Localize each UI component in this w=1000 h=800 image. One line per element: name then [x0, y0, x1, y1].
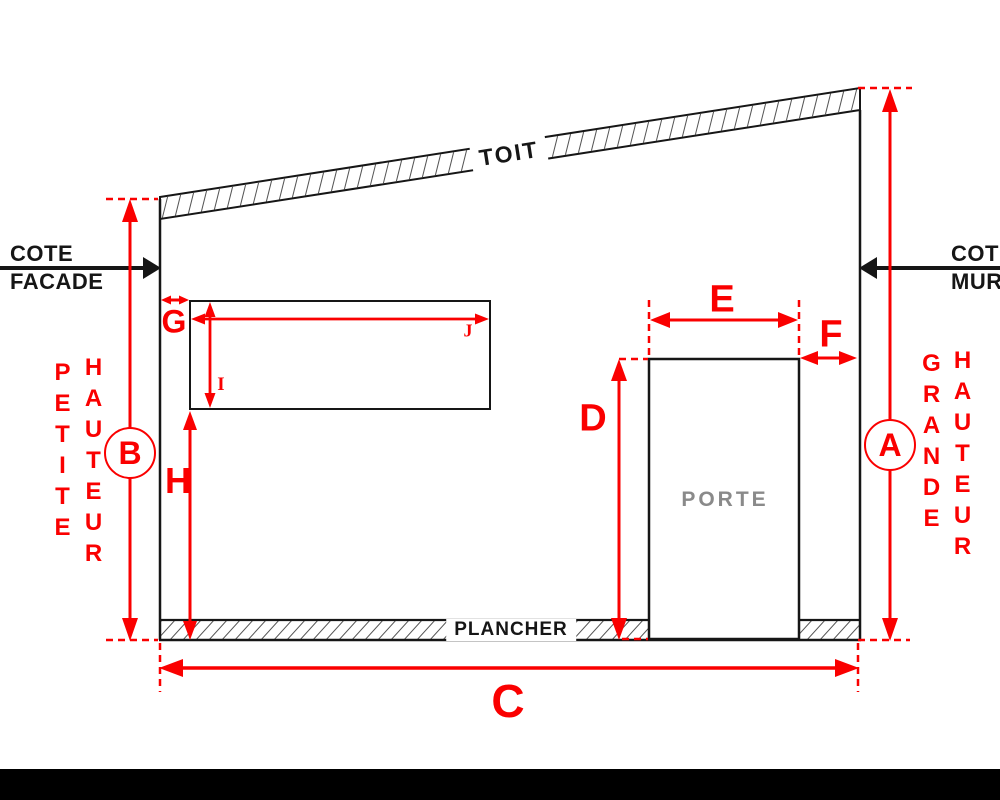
dim-letter-I: I — [217, 374, 224, 396]
dim-line-H — [183, 411, 197, 640]
facade-dimension-diagram: COTE FACADE COTE MUR TOIT PLANCHER PORTE… — [0, 0, 1000, 800]
dim-letter-G: G — [162, 304, 187, 341]
bottom-black-bar — [0, 769, 1000, 800]
mur-reference-label: COTE MUR — [951, 240, 1000, 296]
dim-letter-J: J — [464, 321, 473, 342]
facade-reference-line2: FACADE — [10, 268, 103, 296]
grande-hauteur-word1: GRANDE — [918, 350, 944, 536]
mur-reference-line1: COTE — [951, 240, 1000, 268]
facade-reference-line1: COTE — [10, 240, 103, 268]
badge-A: A — [864, 419, 916, 471]
petite-hauteur-word1: PETITE — [49, 359, 75, 545]
dim-line-B — [122, 199, 138, 641]
dim-letter-D: D — [579, 398, 606, 441]
grande-hauteur-word2: HAUTEUR — [949, 347, 975, 564]
dim-letter-E: E — [709, 279, 734, 322]
dim-letter-H: H — [165, 460, 191, 502]
floor-label: PLANCHER — [446, 619, 576, 641]
dim-letter-F: F — [819, 314, 842, 357]
mur-reference-line2: MUR — [951, 268, 1000, 296]
badge-B: B — [104, 427, 156, 479]
facade-reference-label: COTE FACADE — [10, 240, 103, 296]
dim-line-D — [611, 359, 627, 640]
diagram-canvas — [0, 0, 1000, 770]
window-opening — [190, 301, 490, 409]
door-label: PORTE — [681, 488, 768, 512]
petite-hauteur-word2: HAUTEUR — [80, 354, 106, 571]
dim-letter-C: C — [491, 674, 524, 728]
dim-line-A — [882, 89, 898, 641]
